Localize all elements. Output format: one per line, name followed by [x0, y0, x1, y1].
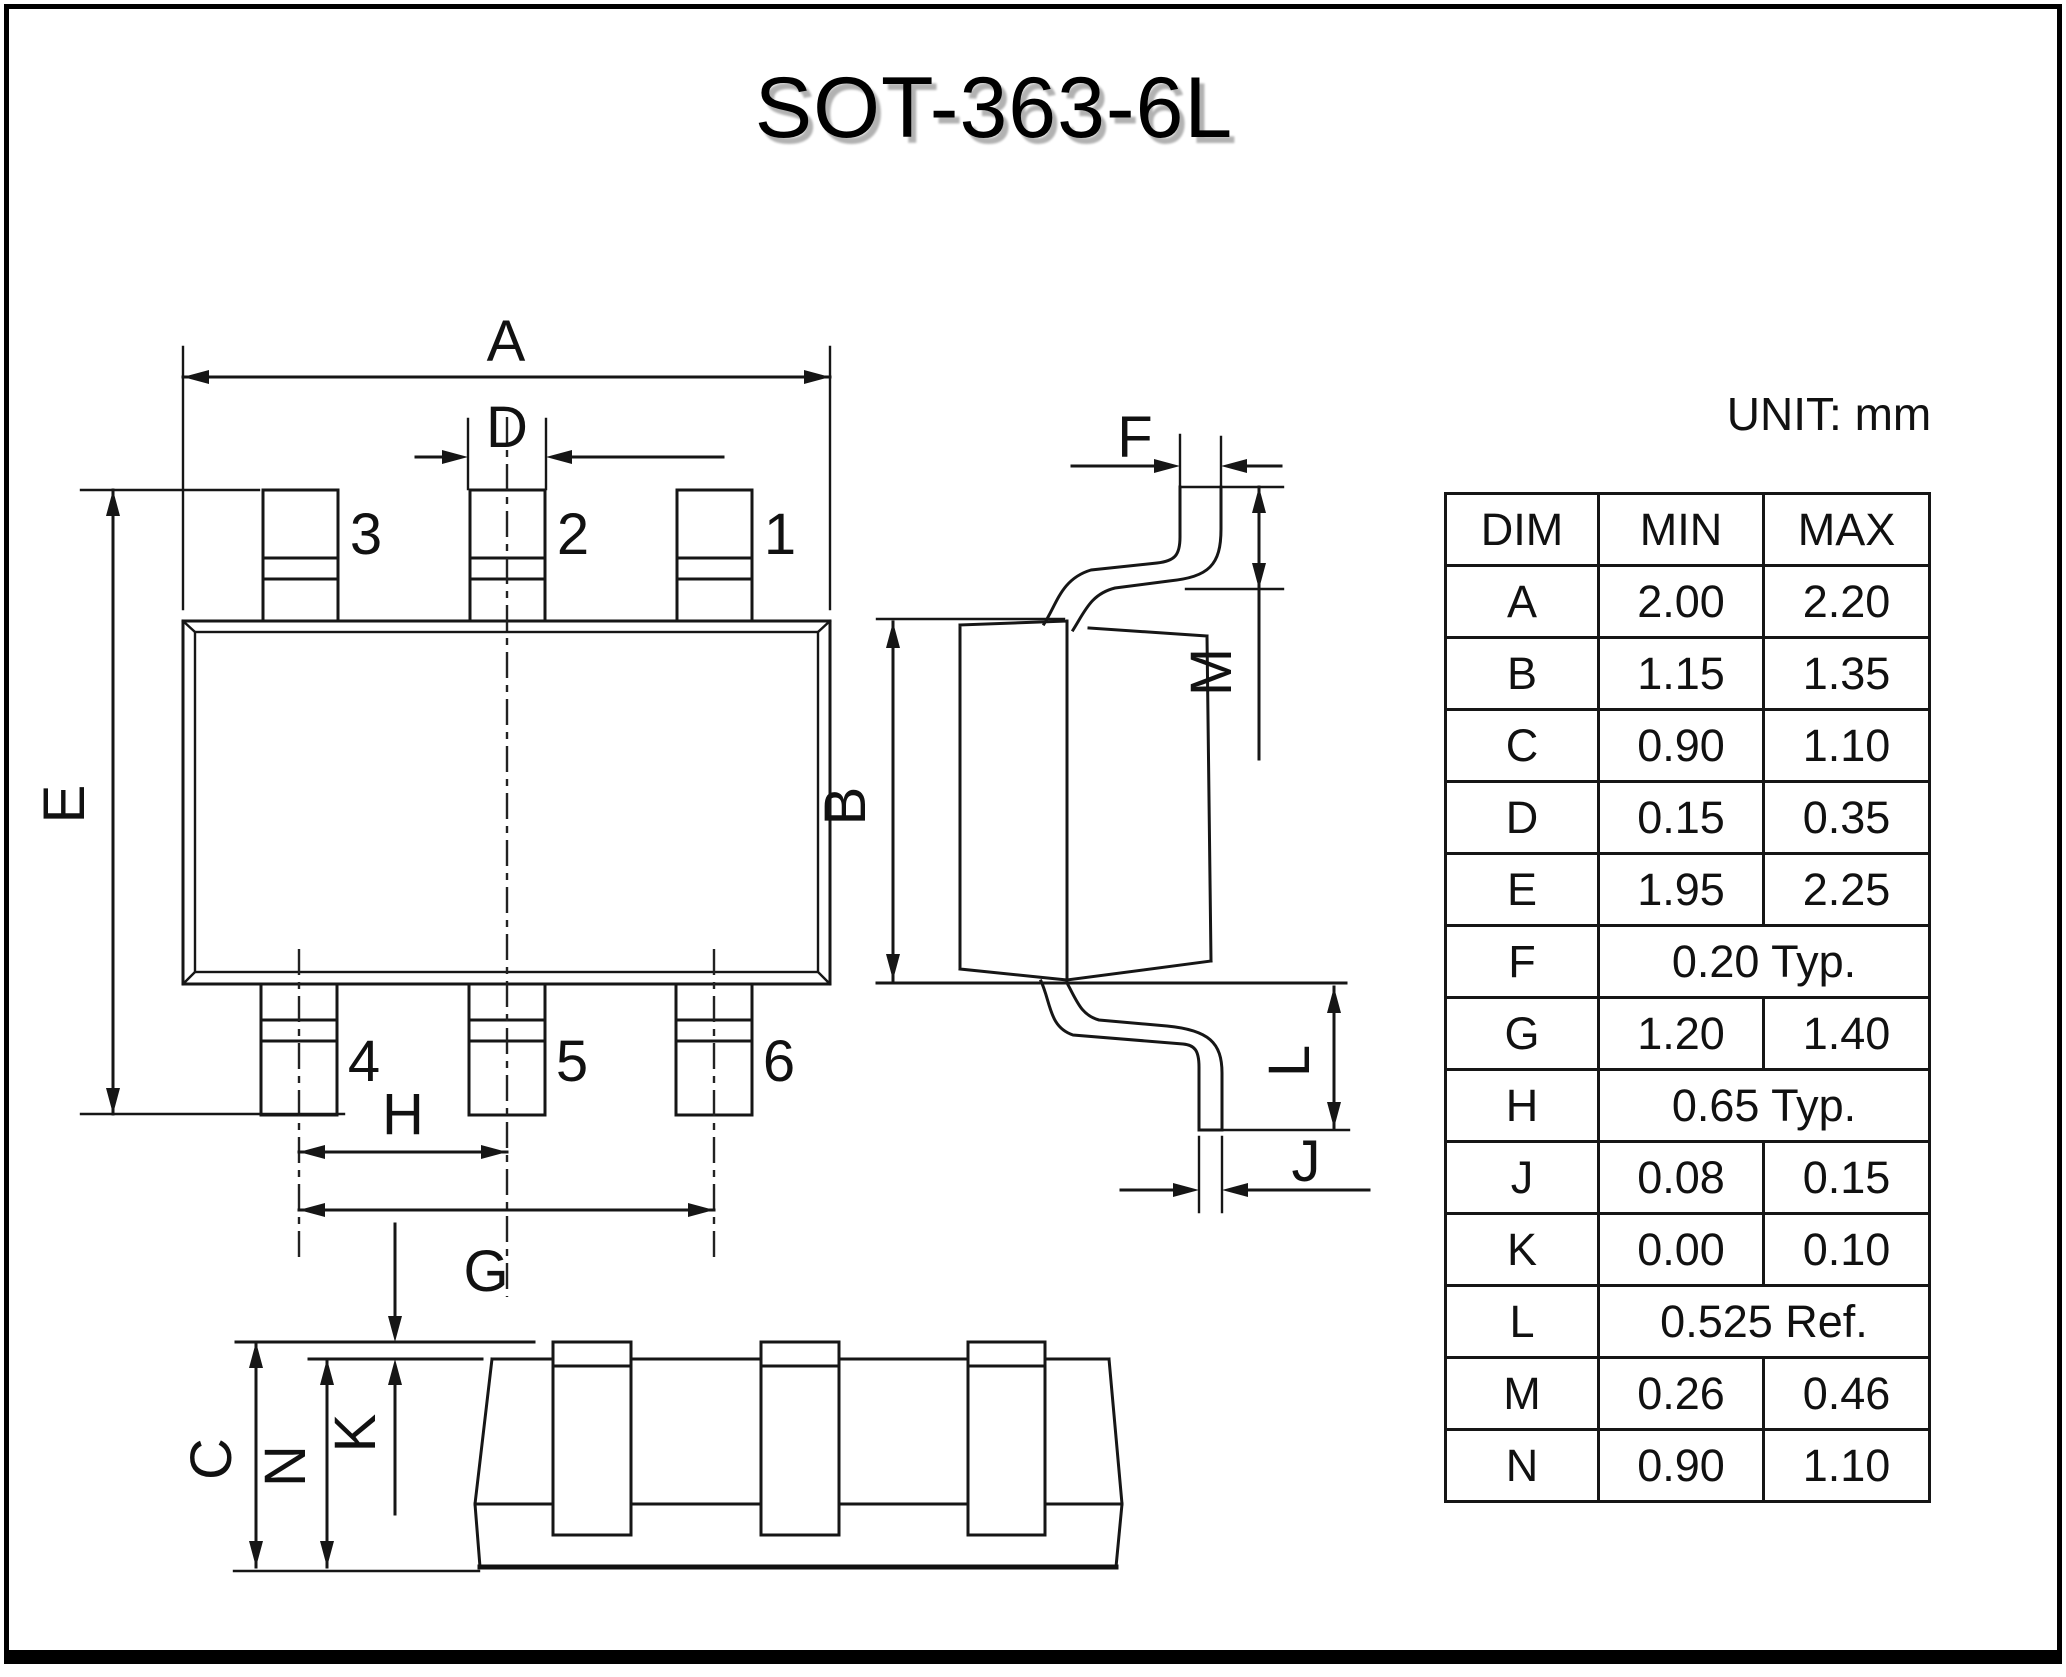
- table-row: D0.150.35: [1446, 782, 1930, 854]
- dim-label-B: B: [813, 787, 878, 826]
- cell-min: 0.90: [1599, 710, 1764, 782]
- table-row: J0.080.15: [1446, 1142, 1930, 1214]
- dim-label-A: A: [487, 309, 526, 374]
- cell-max: 1.40: [1764, 998, 1930, 1070]
- table-row: N0.901.10: [1446, 1430, 1930, 1502]
- cell-max: 1.10: [1764, 710, 1930, 782]
- cell-max: 1.35: [1764, 638, 1930, 710]
- table-row: H0.65 Typ.: [1446, 1070, 1930, 1142]
- pin-label-1: 1: [764, 502, 796, 567]
- side-view: F M B L: [813, 405, 1369, 1212]
- pin-label-6: 6: [763, 1029, 795, 1094]
- cell-max: 0.46: [1764, 1358, 1930, 1430]
- cell-dim: K: [1446, 1214, 1599, 1286]
- cell-dim: H: [1446, 1070, 1599, 1142]
- dim-label-G: G: [463, 1239, 508, 1304]
- front-view-lead-tabs: [553, 1342, 1045, 1535]
- cell-max: 2.20: [1764, 566, 1930, 638]
- dim-label-F: F: [1117, 405, 1152, 470]
- cell-dim: C: [1446, 710, 1599, 782]
- dim-D-annotation: D: [416, 395, 723, 489]
- table-row: K0.000.10: [1446, 1214, 1930, 1286]
- side-view-body: [960, 621, 1211, 980]
- dim-label-L: L: [1257, 1045, 1322, 1077]
- table-row: A2.002.20: [1446, 566, 1930, 638]
- cell-min: 0.90: [1599, 1430, 1764, 1502]
- dim-N-annotation: N: [253, 1359, 334, 1567]
- table-row: B1.151.35: [1446, 638, 1930, 710]
- col-header-min: MIN: [1599, 494, 1764, 566]
- pin-label-3: 3: [350, 502, 382, 567]
- dim-H-annotation: H: [299, 1082, 507, 1159]
- dim-J-annotation: J: [1121, 1129, 1369, 1212]
- cell-max: 0.10: [1764, 1214, 1930, 1286]
- pin-numbers: 3 2 1 4 5 6: [348, 502, 796, 1094]
- cell-max: 0.35: [1764, 782, 1930, 854]
- dim-M-annotation: M: [1179, 487, 1283, 759]
- col-header-max: MAX: [1764, 494, 1930, 566]
- cell-max: 2.25: [1764, 854, 1930, 926]
- cell-min: 0.00: [1599, 1214, 1764, 1286]
- table-row: E1.952.25: [1446, 854, 1930, 926]
- dim-label-N: N: [253, 1445, 318, 1487]
- dim-label-M: M: [1179, 648, 1244, 696]
- cell-span: 0.65 Typ.: [1599, 1070, 1930, 1142]
- dim-label-H: H: [382, 1082, 424, 1147]
- col-header-dim: DIM: [1446, 494, 1599, 566]
- table-row: G1.201.40: [1446, 998, 1930, 1070]
- cell-min: 0.26: [1599, 1358, 1764, 1430]
- cell-span: 0.525 Ref.: [1599, 1286, 1930, 1358]
- cell-min: 1.95: [1599, 854, 1764, 926]
- dim-L-annotation: L: [1222, 987, 1349, 1130]
- dim-F-annotation: F: [1072, 405, 1281, 487]
- pin-label-2: 2: [557, 502, 589, 567]
- cell-dim: M: [1446, 1358, 1599, 1430]
- dim-label-E: E: [32, 785, 97, 824]
- cell-dim: G: [1446, 998, 1599, 1070]
- dimension-table: DIM MIN MAX A2.002.20 B1.151.35 C0.901.1…: [1444, 492, 1931, 1503]
- dim-K-annotation: K: [323, 1224, 402, 1514]
- cell-dim: E: [1446, 854, 1599, 926]
- front-view: C N K: [179, 1224, 1122, 1571]
- cell-dim: N: [1446, 1430, 1599, 1502]
- side-view-lower-lead: [1041, 981, 1222, 1130]
- cell-min: 2.00: [1599, 566, 1764, 638]
- cell-min: 1.20: [1599, 998, 1764, 1070]
- dim-label-K: K: [323, 1413, 388, 1452]
- table-row: M0.260.46: [1446, 1358, 1930, 1430]
- cell-min: 1.15: [1599, 638, 1764, 710]
- pin-label-4: 4: [348, 1029, 380, 1094]
- dim-label-D: D: [486, 395, 528, 460]
- cell-dim: L: [1446, 1286, 1599, 1358]
- table-row: C0.901.10: [1446, 710, 1930, 782]
- table-row: F0.20 Typ.: [1446, 926, 1930, 998]
- cell-dim: J: [1446, 1142, 1599, 1214]
- cell-dim: D: [1446, 782, 1599, 854]
- dim-label-J: J: [1292, 1129, 1321, 1194]
- cell-span: 0.20 Typ.: [1599, 926, 1930, 998]
- dim-B-annotation: B: [813, 619, 1064, 980]
- cell-min: 0.15: [1599, 782, 1764, 854]
- top-view-pins-top: [263, 490, 752, 621]
- cell-dim: B: [1446, 638, 1599, 710]
- cell-dim: F: [1446, 926, 1599, 998]
- top-view: A D E H: [32, 309, 830, 1304]
- side-view-upper-lead: [1044, 487, 1221, 630]
- cell-max: 1.10: [1764, 1430, 1930, 1502]
- dim-label-C: C: [179, 1438, 244, 1480]
- cell-dim: A: [1446, 566, 1599, 638]
- table-row: L0.525 Ref.: [1446, 1286, 1930, 1358]
- cell-min: 0.08: [1599, 1142, 1764, 1214]
- cell-max: 0.15: [1764, 1142, 1930, 1214]
- pin-label-5: 5: [556, 1029, 588, 1094]
- table-header-row: DIM MIN MAX: [1446, 494, 1930, 566]
- page-frame: SOT-363-6L UNIT: mm: [4, 4, 2062, 1664]
